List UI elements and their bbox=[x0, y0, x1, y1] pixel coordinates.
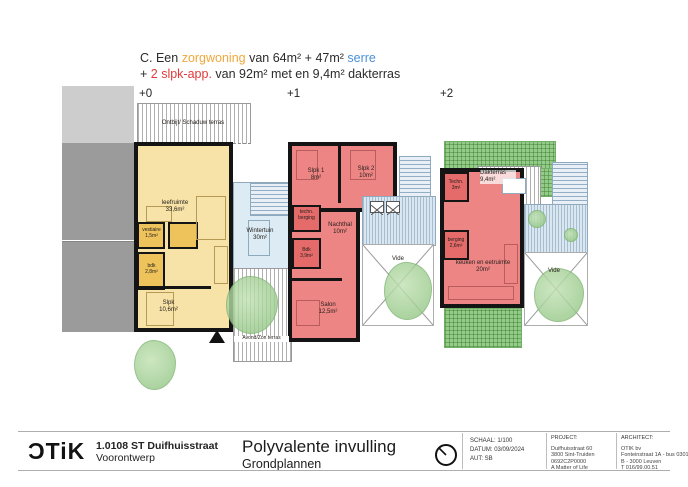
neighbour-building-upper bbox=[62, 86, 134, 143]
room-label-techn-berging: techn.berging bbox=[292, 210, 321, 221]
room-label-avond-terras: Avond/Zon terras bbox=[234, 336, 289, 342]
north-arrow-icon bbox=[209, 330, 225, 343]
level-label-2: +2 bbox=[440, 88, 453, 100]
sheet-heading: C. Een zorgwoning van 64m² + 47m² serre … bbox=[140, 50, 400, 82]
titleblock-bottom-rule bbox=[18, 470, 670, 471]
level-label-0: +0 bbox=[139, 88, 152, 100]
room-label-bdk-0: bdk2,8m² bbox=[138, 264, 165, 275]
scale-value: SCHAAL: 1/100 bbox=[470, 437, 524, 446]
room-label-slpk-0: Slpk10,6m² bbox=[146, 300, 191, 314]
bush-icon-b bbox=[564, 228, 578, 242]
author-value: AUT: SB bbox=[470, 455, 524, 464]
highlight-slpk-app: 2 slpk-app. bbox=[151, 67, 212, 81]
tree-icon-plan0-a bbox=[134, 340, 176, 390]
room-label-techn-2: Techn.3m² bbox=[443, 180, 469, 191]
wall-slpk1-slpk2 bbox=[338, 145, 341, 203]
heading-line-1: C. Een zorgwoning van 64m² + 47m² serre bbox=[140, 50, 400, 66]
stairs-plan0 bbox=[250, 183, 289, 216]
room-label-salon: Salon12,5m² bbox=[306, 302, 350, 316]
appliance-icon-2 bbox=[386, 201, 400, 213]
heading-line-2: + 2 slpk-app. van 92m² met en 9,4m² dakt… bbox=[140, 66, 400, 82]
room-label-nachthal: Nachthal10m² bbox=[322, 222, 358, 236]
room-label-bdk-1: Bdk3,9m² bbox=[292, 248, 321, 259]
sheet-title: Polyvalente invulling bbox=[242, 437, 396, 457]
room-label-leefruimte: leefruimte33,6m² bbox=[150, 200, 200, 214]
neighbour-building-lower bbox=[62, 241, 134, 332]
titleblock-divider-1 bbox=[462, 433, 463, 469]
room-label-wintertuin: Wintertuin30m² bbox=[238, 228, 282, 242]
titleblock-divider-3 bbox=[616, 433, 617, 469]
architect-info-header: ARCHITECT: bbox=[621, 435, 688, 442]
appliance-icon-1 bbox=[370, 201, 384, 213]
project-code: 1.0108 ST Duifhuisstraat bbox=[96, 440, 218, 452]
room-label-ontbijt-terras: Ontbijt/ Schaduw terras bbox=[137, 120, 249, 127]
north-indicator-icon bbox=[434, 443, 458, 467]
sheet-subtitle: Grondplannen bbox=[242, 457, 396, 471]
neighbour-building-mid bbox=[62, 143, 134, 240]
kitchen-counter-icon-2 bbox=[448, 286, 514, 300]
kitchen-counter-icon bbox=[214, 246, 228, 284]
level-label-1: +1 bbox=[287, 88, 300, 100]
room-label-slpk1: Slpk 18m² bbox=[296, 168, 336, 182]
architect-info-line: Fonteinstraat 1A - bus 0301 bbox=[621, 452, 688, 459]
room-label-vide-2: Vide bbox=[538, 268, 570, 275]
project-code-block: 1.0108 ST Duifhuisstraat Voorontwerp bbox=[96, 440, 218, 464]
dining-table-icon bbox=[196, 196, 226, 240]
otik-logo: ƆTiK bbox=[28, 438, 85, 465]
architect-info-block: ARCHITECT: OTIK bv Fonteinstraat 1A - bu… bbox=[621, 435, 688, 472]
project-info-header: PROJECT: bbox=[551, 435, 613, 442]
room-berging-0 bbox=[168, 222, 198, 249]
room-label-vide-1: Vide bbox=[380, 256, 416, 263]
titleblock-top-rule bbox=[18, 431, 670, 432]
project-info-block: PROJECT: Duifhuisstraat 60 3800 Sint-Tru… bbox=[551, 435, 613, 472]
highlight-zorgwoning: zorgwoning bbox=[182, 51, 246, 65]
titleblock-divider-2 bbox=[546, 433, 547, 469]
room-label-keuken: keuken en eetruimte20m² bbox=[452, 260, 514, 274]
drawing-sheet: C. Een zorgwoning van 64m² + 47m² serre … bbox=[0, 0, 688, 487]
project-phase: Voorontwerp bbox=[96, 452, 218, 464]
bush-icon-a bbox=[528, 210, 546, 228]
room-label-slpk2: Slpk 210m² bbox=[344, 166, 388, 180]
date-value: DATUM: 03/09/2024 bbox=[470, 446, 524, 455]
highlight-serre: serre bbox=[347, 51, 375, 65]
room-label-berging-2: berging2,6m² bbox=[443, 238, 469, 249]
room-label-vestiaire: vestiaire1,5m² bbox=[137, 228, 166, 239]
green-roof-bottom bbox=[444, 308, 522, 348]
sheet-title-block: Polyvalente invulling Grondplannen bbox=[242, 437, 396, 471]
wall-leefruimte-slpk bbox=[139, 286, 211, 289]
scale-block: SCHAAL: 1/100 DATUM: 03/09/2024 AUT: SB bbox=[470, 437, 524, 464]
stairs-plan1 bbox=[399, 156, 431, 198]
room-label-dakterras: Dakterras9,4m² bbox=[480, 170, 516, 184]
wall-nachthal-salon bbox=[292, 278, 342, 281]
